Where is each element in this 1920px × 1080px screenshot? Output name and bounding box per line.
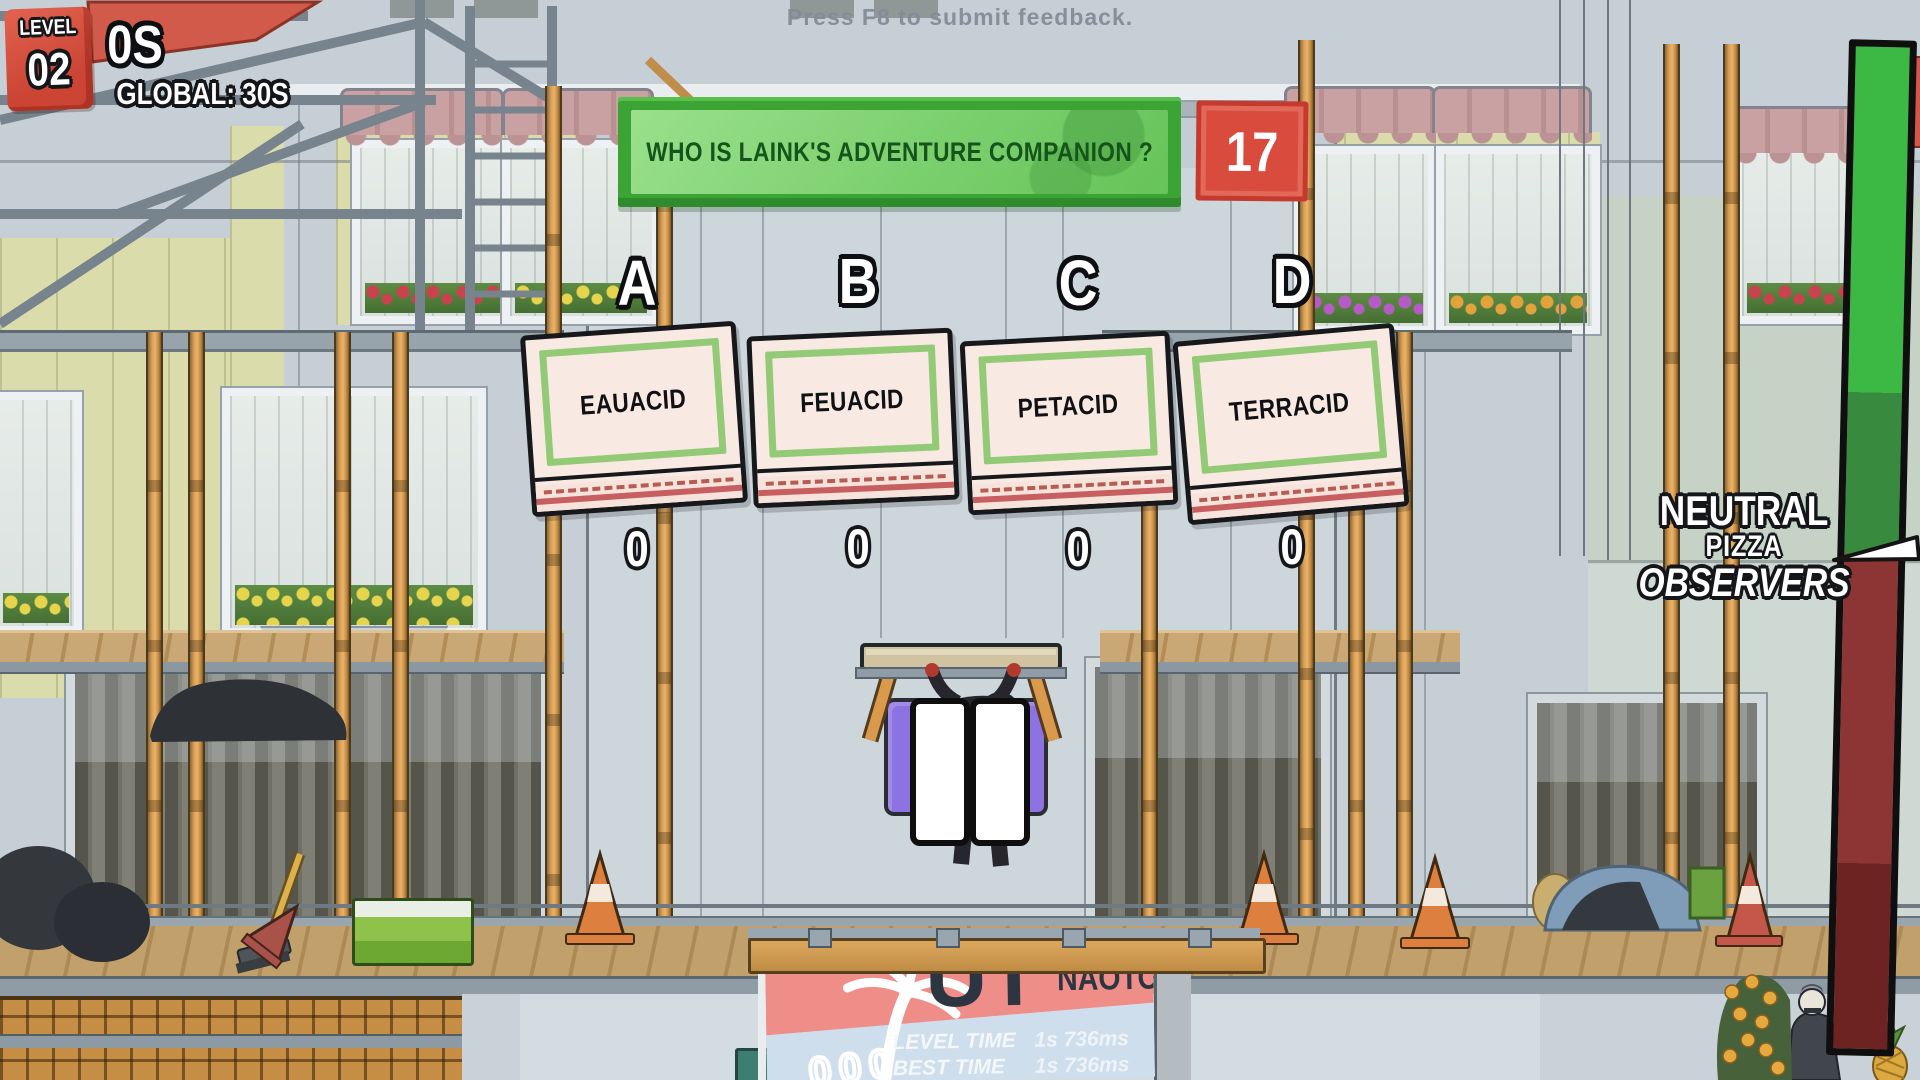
gauge-pointer-layer xyxy=(0,0,1920,1080)
audience-line3: OBSERVERS xyxy=(1618,561,1869,606)
gauge-pointer-icon xyxy=(1834,537,1919,560)
audience-line2: PIZZA xyxy=(1698,530,1790,564)
game-screen: UT NAOTO LEVEL TIME 1s 736ms BEST TIME 1… xyxy=(0,0,1920,1080)
audience-line1: NEUTRAL xyxy=(1644,487,1845,535)
